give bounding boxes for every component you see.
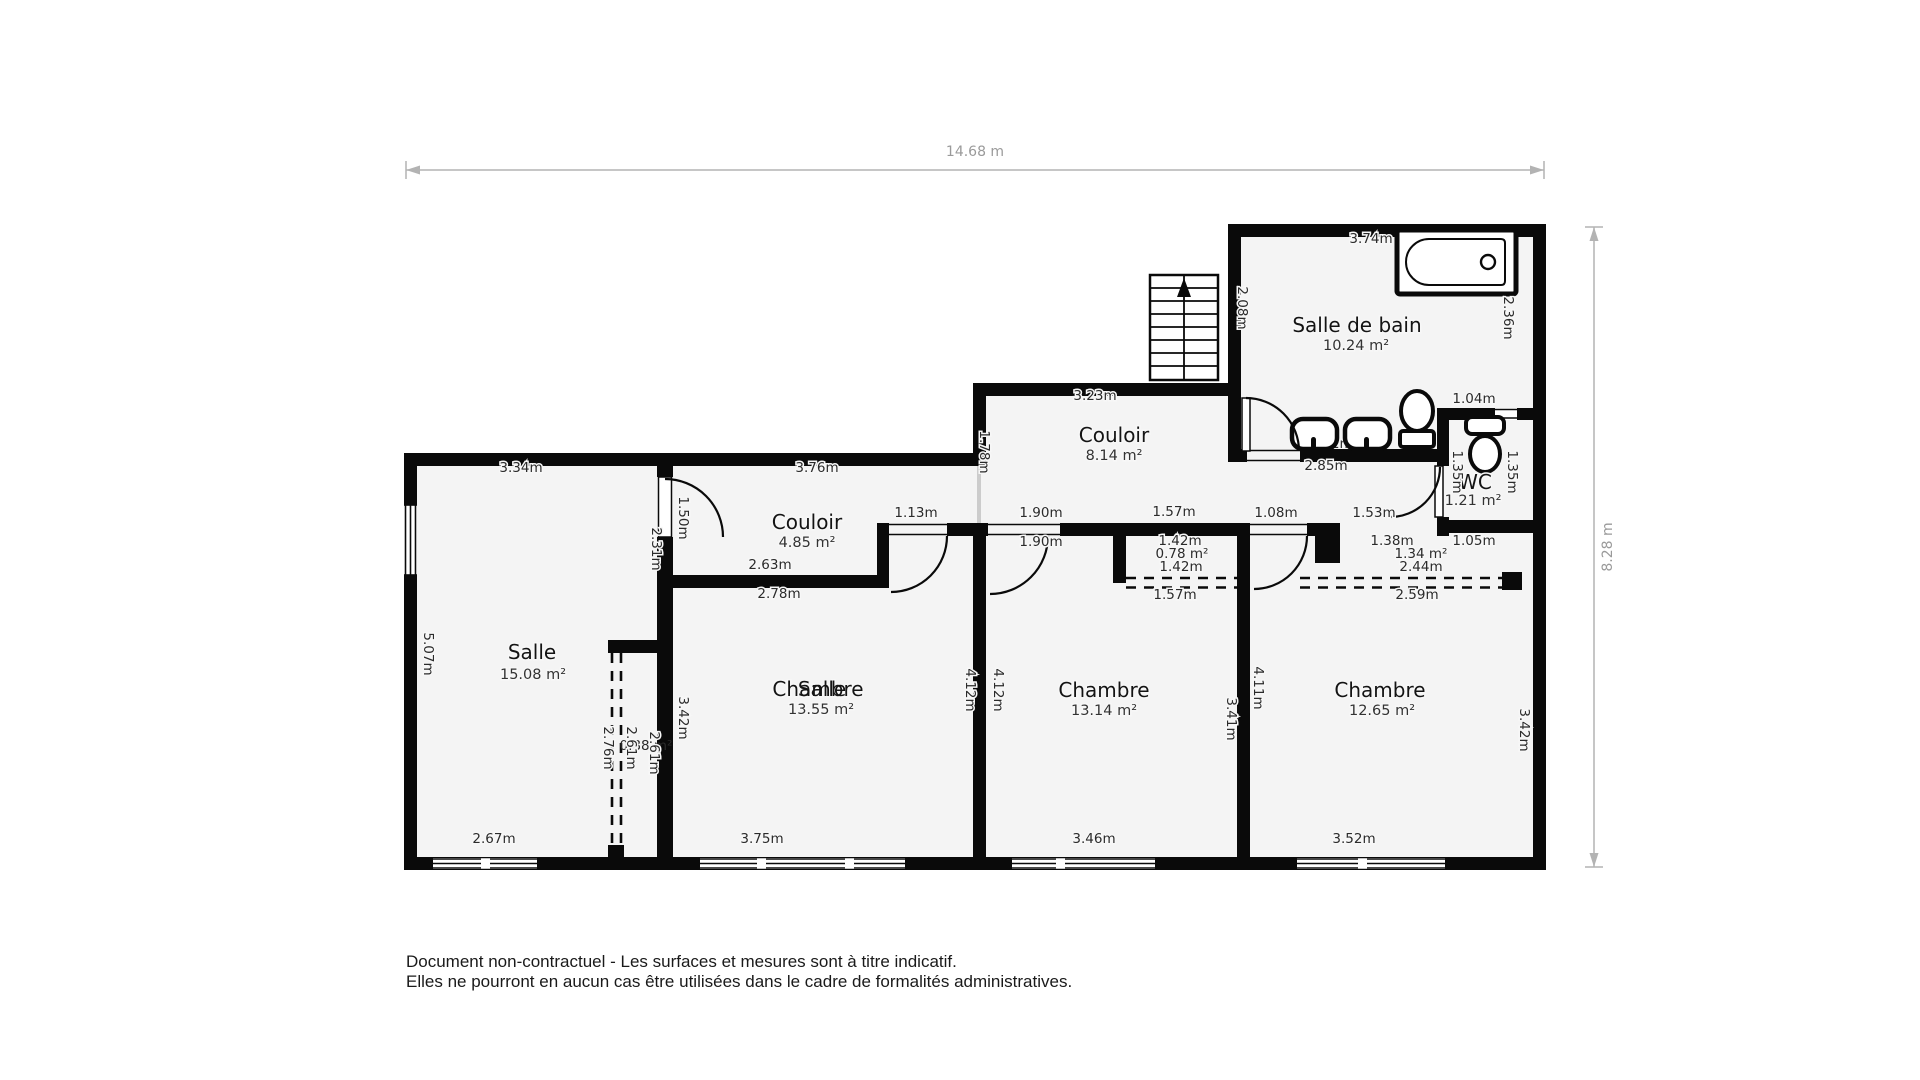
dim-ch3-left: 4.11m bbox=[1250, 666, 1266, 709]
dim-salle-window: 2.67m bbox=[472, 831, 515, 847]
dim-col4-top: 3.76m bbox=[795, 460, 838, 476]
room-name-couloir-bas: Couloir bbox=[772, 510, 843, 534]
sink-right bbox=[1345, 419, 1390, 449]
dim-wc-left: 1.35m bbox=[1449, 450, 1465, 493]
room-area-chambre2: 13.14 m² bbox=[1071, 703, 1137, 719]
room-name-chambre2: Chambre bbox=[1058, 678, 1149, 702]
dim-col8-seg2: 1.57m bbox=[1152, 504, 1195, 520]
dim-sdb-right: 2.36m bbox=[1500, 296, 1516, 339]
dim-ch3-right: 3.42m bbox=[1516, 708, 1532, 751]
dim-salle-right: 2.31m bbox=[648, 527, 664, 570]
toilet-bathroom bbox=[1400, 391, 1434, 447]
dim-ch3-window: 3.52m bbox=[1332, 831, 1375, 847]
dim-placard-261b: 2.61m bbox=[646, 731, 662, 774]
dim-col8-left: 1.78m bbox=[976, 430, 992, 473]
dim-col8-seg1: 1.90m bbox=[1019, 505, 1062, 521]
dim-sdb-top: 3.74m bbox=[1349, 231, 1392, 247]
dim-ch1-window: 3.75m bbox=[740, 831, 783, 847]
dim-ch1-right: 4.12m bbox=[962, 668, 978, 711]
dim-col4-bottom: 2.63m bbox=[748, 557, 791, 573]
dim-ch3-closet-front: 2.59m bbox=[1395, 587, 1438, 603]
door-panel-bathroom bbox=[1242, 398, 1250, 451]
room-area-salle-de-bain: 10.24 m² bbox=[1323, 338, 1389, 354]
bathtub bbox=[1397, 230, 1516, 294]
overall-width-dim: 14.68 m bbox=[946, 144, 1004, 160]
room-area-couloir-haut: 8.14 m² bbox=[1086, 448, 1143, 464]
bathtub-drain bbox=[1481, 255, 1495, 269]
staircase bbox=[1150, 275, 1218, 380]
dim-ch2-closet-bottom: 1.42m bbox=[1159, 559, 1202, 575]
dim-ch2-right: 3.41m bbox=[1223, 697, 1239, 740]
overall-height-dim: 8.28 m bbox=[1600, 522, 1616, 571]
dim-ch3-closet-w: 2.44m bbox=[1399, 559, 1442, 575]
passage-line bbox=[977, 466, 981, 523]
dim-salle-left: 5.07m bbox=[420, 632, 436, 675]
dim-wc-right: 1.35m bbox=[1504, 450, 1520, 493]
dim-placard-261a: 2.61m bbox=[623, 726, 639, 769]
dim-ch2-closet-front: 1.57m bbox=[1153, 587, 1196, 603]
room-area-chambre3: 12.65 m² bbox=[1349, 703, 1415, 719]
floorplan-drawing: 2.71m bbox=[0, 0, 1920, 1080]
toilet-wc bbox=[1466, 417, 1504, 472]
dim-wc-top: 1.04m bbox=[1452, 391, 1495, 407]
dim-door-chambre2: 1.90m bbox=[1019, 534, 1062, 550]
dim-ch2-left: 4.12m bbox=[990, 668, 1006, 711]
dim-sdb-left: 2.08m bbox=[1234, 286, 1250, 329]
faucet-icon bbox=[1311, 437, 1316, 449]
faucet-icon bbox=[1364, 437, 1369, 449]
dim-ch3-door: 1.53m bbox=[1352, 505, 1395, 521]
dim-col8-seg3: 1.08m bbox=[1254, 505, 1297, 521]
footer-line-1: Document non-contractuel - Les surfaces … bbox=[406, 952, 957, 971]
dim-col8-top: 3.23m bbox=[1073, 388, 1116, 404]
dim-door-salle: 1.50m bbox=[675, 496, 691, 539]
room-name-couloir-haut: Couloir bbox=[1079, 423, 1150, 447]
footer-line-2: Elles ne pourront en aucun cas être util… bbox=[406, 972, 1072, 991]
room-name-salle-de-bain: Salle de bain bbox=[1292, 313, 1421, 337]
dim-sdb-bottom: 2.85m bbox=[1304, 458, 1347, 474]
room-name-chambre1-overlay: Salle bbox=[798, 677, 846, 701]
room-area-wc: 1.21 m² bbox=[1445, 493, 1502, 509]
room-area-chambre1: 13.55 m² bbox=[788, 702, 854, 718]
footer-note: Document non-contractuel - Les surfaces … bbox=[406, 952, 1072, 991]
dim-placard-276: 2.76m bbox=[600, 726, 616, 769]
dim-salle-top: 3.34m bbox=[499, 460, 542, 476]
floorplan-page: 2.71m bbox=[0, 0, 1920, 1080]
dim-col4-bottom-ext: 2.78m bbox=[757, 586, 800, 602]
dim-ch2-window: 3.46m bbox=[1072, 831, 1115, 847]
dim-ch1-left: 3.42m bbox=[675, 696, 691, 739]
room-area-salle: 15.08 m² bbox=[500, 667, 566, 683]
room-name-chambre3: Chambre bbox=[1334, 678, 1425, 702]
room-name-salle: Salle bbox=[508, 640, 556, 664]
dim-ch3-closet-b: 1.05m bbox=[1452, 533, 1495, 549]
room-area-couloir-bas: 4.85 m² bbox=[779, 535, 836, 551]
dim-door-chambre1: 1.13m bbox=[894, 505, 937, 521]
